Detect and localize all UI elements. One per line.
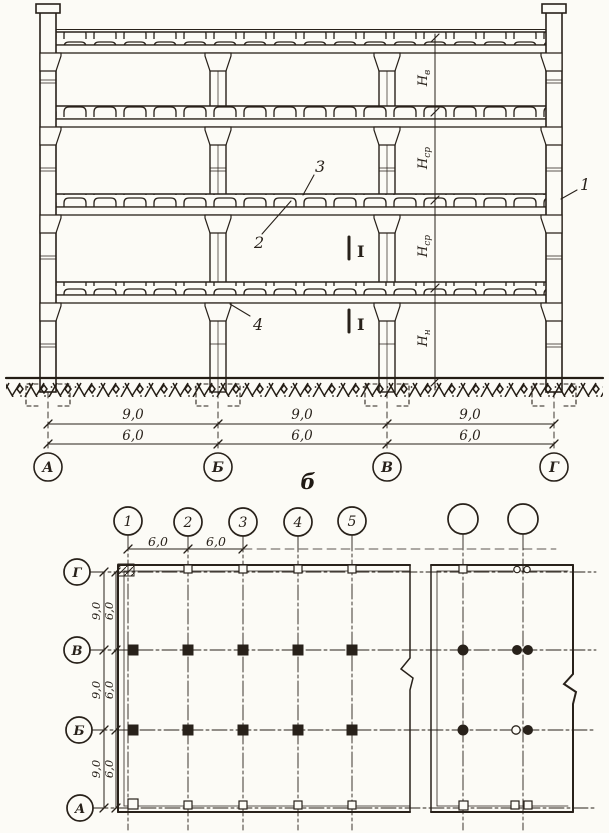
slab-band	[44, 194, 560, 215]
drawing-page: Нв Нср Нср Нн 1 2 3 4 I I	[0, 0, 609, 833]
building-section: Нв Нср Нср Нн 1 2 3 4 I I	[6, 4, 603, 494]
plan-axis-lines	[90, 535, 596, 830]
plan-dim-6-2: 6,0	[206, 534, 226, 549]
plan-top-dimensions: 6,0 6,0	[124, 534, 556, 553]
axis-label-2: 2	[183, 515, 193, 531]
plan-dim-6-row2: 6,0	[102, 681, 116, 699]
dim-9-span2: 9,0	[291, 407, 313, 423]
dim-9-span1: 9,0	[122, 407, 144, 423]
dim-6-span3: 6,0	[459, 428, 481, 444]
plan-dim-6-row3: 6,0	[102, 760, 116, 778]
plan-top-axis-bubbles: 1 2 3 4 5	[114, 504, 538, 536]
figure-caption: б	[300, 469, 315, 494]
callout-beam: 2	[253, 233, 264, 252]
section-mark-bottom: I	[357, 315, 364, 334]
slab-band	[44, 282, 560, 303]
height-label-lower: Нн	[416, 329, 433, 347]
axis-label-4: 4	[293, 515, 303, 531]
plan-dim-9-row1: 9,0	[89, 602, 103, 620]
axis-label-b: Б	[211, 460, 224, 476]
plan-dim-9-row2: 9,0	[89, 681, 103, 699]
section-mark-top: I	[357, 242, 364, 261]
beam-haunches	[40, 53, 562, 321]
axis-bubble-blank-1	[448, 504, 478, 534]
plan-dim-9-row3: 9,0	[89, 760, 103, 778]
plan-dim-6-row1: 6,0	[102, 602, 116, 620]
height-label-middle-2: Нср	[416, 235, 433, 258]
plan-slab-right	[431, 565, 576, 812]
axis-label-row-g: Г	[72, 566, 83, 581]
axis-label-5: 5	[348, 514, 357, 530]
corner-hatch	[118, 564, 134, 576]
plan-slab-left	[118, 565, 413, 812]
callout-wall-panel: 1	[580, 175, 590, 194]
slab-band	[44, 32, 560, 53]
building-plan: 6,0 6,0 9,0 9,0 9,0 6,0 6,0 6,0	[64, 504, 596, 830]
axis-label-g: Г	[548, 460, 560, 476]
axis-label-v: В	[380, 460, 393, 476]
section-span-dimensions: 9,0 9,0 9,0 6,0 6,0 6,0 А Б В Г	[34, 392, 568, 481]
callout-column-joint: 4	[252, 315, 263, 334]
plan-columns-round	[458, 566, 534, 735]
height-label-middle-1: Нср	[416, 147, 433, 170]
axis-label-row-a: А	[74, 802, 86, 817]
structural-drawing: Нв Нср Нср Нн 1 2 3 4 I I	[0, 0, 609, 833]
axis-label-3: 3	[239, 515, 248, 531]
dim-6-span2: 6,0	[291, 428, 313, 444]
dim-6-span1: 6,0	[122, 428, 144, 444]
break-line-right	[564, 565, 576, 812]
axis-bubble-blank-2	[508, 504, 538, 534]
height-label-upper: Нв	[416, 70, 433, 88]
axis-label-a: А	[41, 460, 53, 476]
callouts: 1 2 3 4	[230, 157, 590, 334]
plan-left-dimensions: 9,0 9,0 9,0 6,0 6,0 6,0	[89, 568, 120, 812]
axis-label-row-v: В	[71, 644, 83, 659]
floor-slabs	[44, 30, 560, 304]
axis-label-1: 1	[124, 514, 133, 530]
ground	[6, 378, 603, 406]
plan-dim-6-1: 6,0	[148, 534, 168, 549]
dim-9-span3: 9,0	[459, 407, 481, 423]
break-line-left	[401, 565, 413, 812]
axis-label-row-b: Б	[72, 724, 84, 739]
callout-slab: 3	[315, 157, 325, 176]
slab-band	[44, 106, 560, 127]
